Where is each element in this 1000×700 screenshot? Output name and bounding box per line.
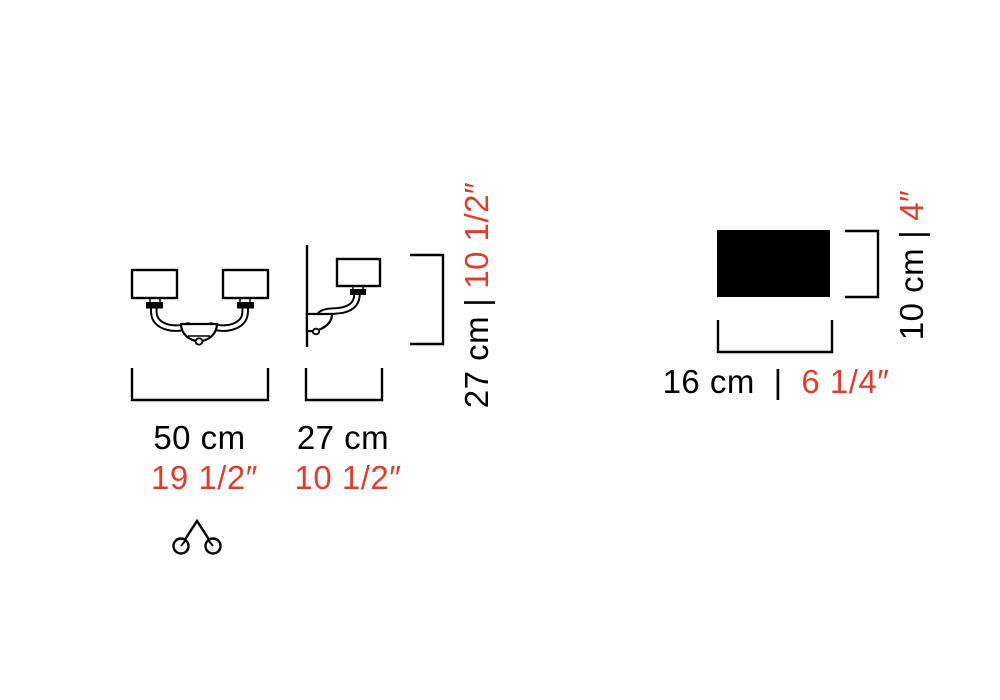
top-depth-imperial: 4″ [895,190,928,221]
side-height-dimension-label: 27 cm | 10 1/2″ [456,175,496,415]
lampshade-right [223,270,268,309]
front-width-imperial-label: 19 1/2″ [127,461,282,494]
lampshade-left [132,270,177,309]
side-depth-imperial-label: 10 1/2″ [278,461,418,494]
front-width-metric-label: 50 cm [127,421,272,454]
bulb-count-icon [174,521,221,554]
dimension-separator: | [895,230,928,239]
side-height-metric: 27 cm [460,316,493,408]
dimension-separator: | [460,298,493,307]
top-width-bracket [718,320,832,352]
top-depth-dimension-label: 10 cm | 4″ [891,180,931,350]
top-width-dimension-label: 16 cm | 6 1/4″ [661,365,891,398]
line-art [0,0,1000,700]
dimension-separator: | [774,363,783,400]
top-depth-metric: 10 cm [895,248,928,340]
side-height-imperial: 10 1/2″ [460,182,493,289]
top-view-solid-rect [717,230,830,297]
side-view-drawing [307,245,380,347]
sconce-arm-side [320,294,357,315]
top-width-imperial: 6 1/4″ [801,363,889,400]
side-depth-bracket [306,368,382,400]
front-view-drawing [132,270,268,345]
top-view-drawing [717,230,830,297]
side-height-bracket [410,255,443,344]
side-depth-metric-label: 27 cm [278,421,408,454]
sconce-bowl-side [307,314,332,334]
lampshade-side [337,259,380,295]
top-width-metric: 16 cm [663,363,755,400]
top-depth-bracket [845,231,878,297]
sconce-bowl-front [181,324,217,345]
dimension-spec-sheet: 50 cm 19 1/2″ 27 cm 10 1/2″ 27 cm | 10 1… [0,0,1000,700]
front-width-bracket [132,368,268,400]
